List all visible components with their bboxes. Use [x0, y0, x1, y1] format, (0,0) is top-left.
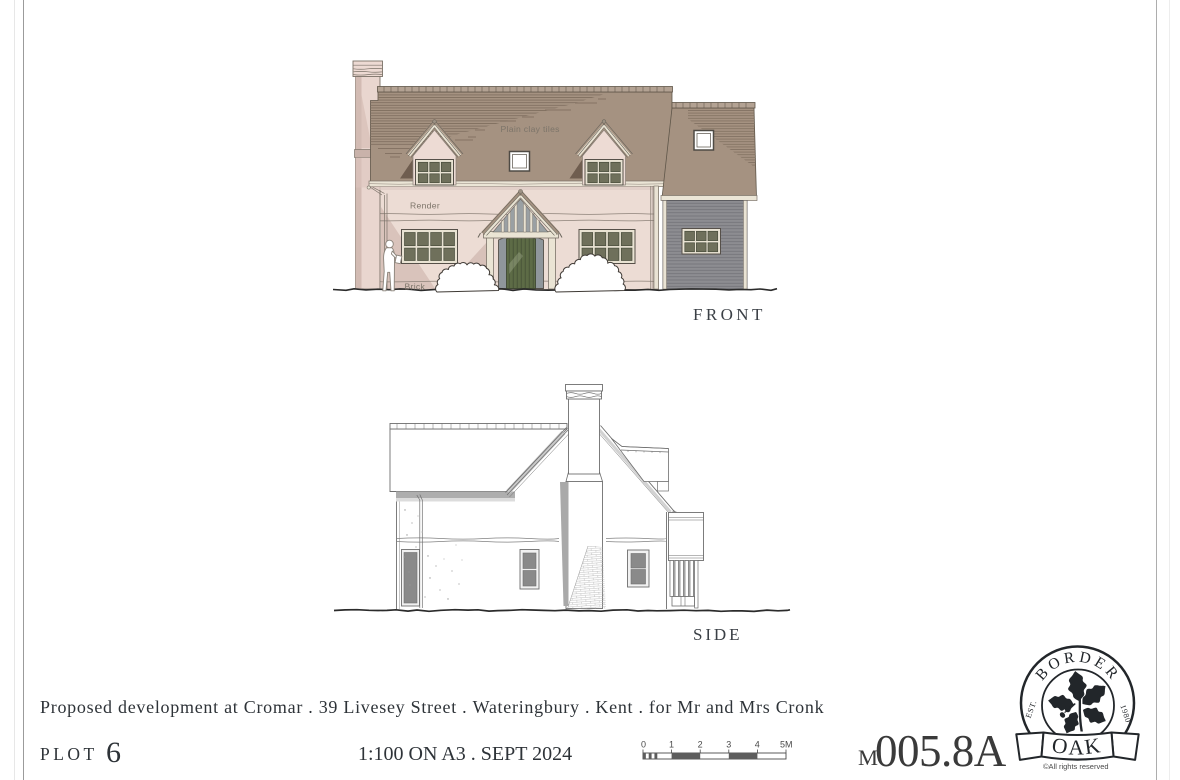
svg-text:Brick: Brick: [405, 282, 426, 292]
svg-text:3: 3: [726, 740, 731, 750]
svg-text:Render: Render: [410, 201, 440, 211]
svg-text:OAK: OAK: [1050, 733, 1103, 759]
svg-text:5M: 5M: [780, 740, 793, 750]
svg-text:4: 4: [755, 740, 760, 750]
svg-text:1: 1: [669, 740, 674, 750]
svg-text:Plain clay tiles: Plain clay tiles: [501, 124, 560, 134]
svg-text:2: 2: [698, 740, 703, 750]
svg-text:0: 0: [641, 740, 646, 750]
